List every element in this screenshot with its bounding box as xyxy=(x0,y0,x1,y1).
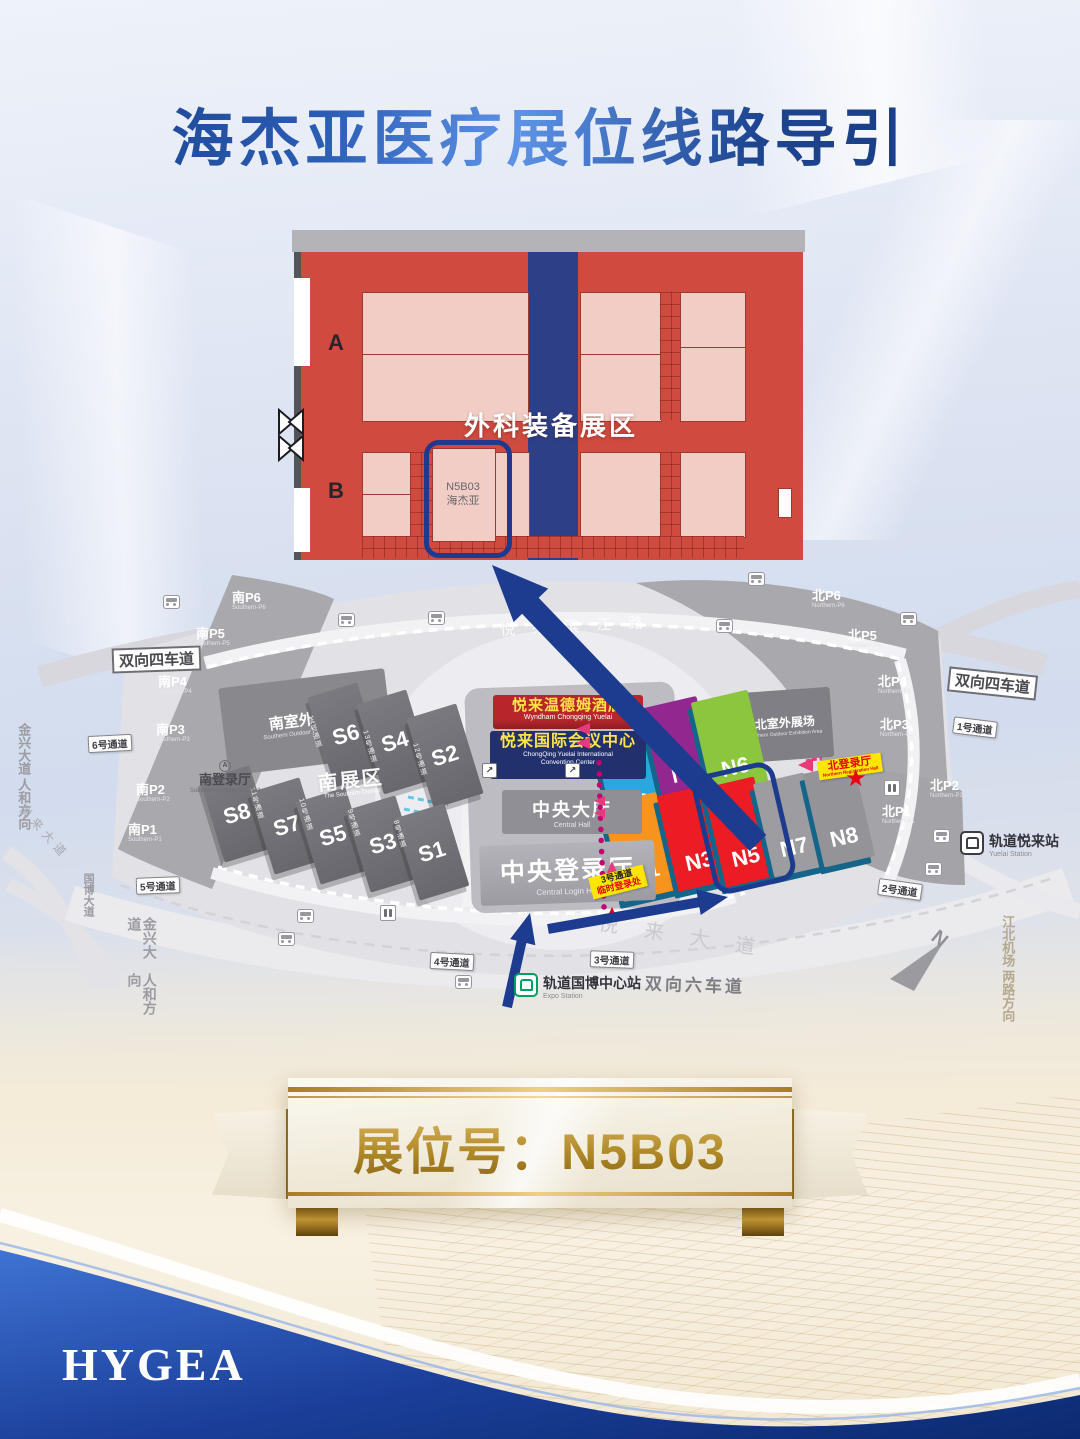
hall-floor: 外科装备展区 N5B03 海杰亚 A B xyxy=(294,252,803,560)
entrance-4: 4号通道 xyxy=(430,952,474,971)
bus-stop-icon xyxy=(900,612,917,626)
bus-stop-icon xyxy=(925,862,942,876)
parking-north-p3: 北P3Northern-P3 xyxy=(880,718,913,738)
booth-block xyxy=(362,292,529,356)
hall-door xyxy=(294,278,310,366)
restroom-icon xyxy=(884,780,900,796)
parking-south-p1: 南P1Southern-P1 xyxy=(128,823,162,843)
parking-south-p5: 南P5Southern-P5 xyxy=(196,627,230,647)
gold-line xyxy=(288,1087,792,1092)
bus-stop-icon xyxy=(297,909,314,923)
parking-south-p6: 南P6Southern-P6 xyxy=(232,591,266,611)
booth-block xyxy=(580,452,662,538)
booth-number-banner: 展位号：N5B03 xyxy=(288,1078,792,1208)
site-map: 南P6Southern-P6 南P5Southern-P5 南P4Souther… xyxy=(0,555,1080,1025)
expo-metro-station: 轨道国博中心站 Expo Station xyxy=(514,973,641,1000)
entrance-6: 6号通道 xyxy=(88,734,132,753)
road-guobo: 国博大道 xyxy=(82,873,94,917)
road-six-lane: 双向六车道 xyxy=(645,969,746,997)
restroom-icon xyxy=(380,905,396,921)
escalator-icon xyxy=(482,763,497,778)
booth-block xyxy=(680,452,746,538)
parking-south-p2: 南P2Southern-P2 xyxy=(136,783,170,803)
central-hall: 中央大厅 Central Hall xyxy=(502,790,642,834)
road-airport-direction: 江北机场 两路方向 xyxy=(1000,915,1014,1022)
badge-a-icon: A xyxy=(219,760,231,772)
page-title: 海杰亚医疗展位线路导引 xyxy=(0,88,1080,178)
parking-south-p4: 南P4Southern-P4 xyxy=(158,675,192,695)
zone-label: 外科装备展区 xyxy=(401,406,701,443)
parking-south-p3: 南P3Southern-P3 xyxy=(156,723,190,743)
north-road-shape xyxy=(940,589,1080,637)
south-registration-hall: A 南登录厅 Southern Registration Hall xyxy=(182,760,268,795)
banner-fold-left xyxy=(296,1206,338,1236)
parking-north-p5: 北P5Northern-P5 xyxy=(848,629,881,649)
banner-fold-right xyxy=(742,1206,784,1236)
booth-block xyxy=(580,292,662,356)
booth-number-text: 展位号：N5B03 xyxy=(288,1112,792,1184)
bus-stop-icon xyxy=(716,619,733,633)
door-swing-icon xyxy=(276,408,306,462)
booth-grid xyxy=(660,452,680,536)
parking-north-p2: 北P2Northern-P2 xyxy=(930,779,963,799)
gold-line xyxy=(288,1096,792,1098)
hygea-logo: HYGEA xyxy=(62,1338,246,1391)
bottom-wave-svg xyxy=(0,1175,1080,1439)
booth-highlight-outline xyxy=(424,440,512,558)
bottom-wave xyxy=(0,1175,1080,1439)
bus-stop-icon xyxy=(455,975,472,989)
metro-icon xyxy=(960,831,984,855)
bus-stop-icon xyxy=(278,932,295,946)
parking-north-p4: 北P4Northern-P4 xyxy=(878,675,911,695)
bus-stop-icon xyxy=(748,572,765,586)
escalator-icon xyxy=(565,763,580,778)
parking-north-p6: 北P6Northern-P6 xyxy=(812,589,845,609)
road-jinxing-2: 金兴大道 人和方向 xyxy=(126,917,157,1025)
entrance-3: 3号通道 xyxy=(590,950,634,969)
booth-block xyxy=(362,452,412,496)
bus-stop-icon xyxy=(933,829,950,843)
bus-stop-icon xyxy=(163,595,180,609)
hall-door xyxy=(294,488,310,552)
booth-block xyxy=(362,494,412,538)
booth-grid xyxy=(660,292,680,420)
hall-door xyxy=(778,488,792,518)
star-icon xyxy=(845,767,867,791)
entrance-5: 5号通道 xyxy=(136,876,180,895)
yuelai-metro-station: 轨道悦来站 Yuelai Station xyxy=(960,831,1059,858)
hall-top-strip xyxy=(292,230,805,252)
row-a-label: A xyxy=(328,330,344,356)
row-b-label: B xyxy=(328,478,344,504)
road-four-lane-left: 双向四车道 xyxy=(112,645,202,673)
metro-icon xyxy=(514,973,538,997)
bus-stop-icon xyxy=(428,611,445,625)
booth-block xyxy=(680,292,746,349)
hotel-banner: 悦来温德姆酒店 Wyndham Chongqing Yuelai xyxy=(493,695,643,729)
bus-stop-icon xyxy=(338,613,355,627)
booth-grid xyxy=(362,536,744,558)
parking-north-p1: 北P1Northern-P1 xyxy=(882,805,915,825)
poster: 海杰亚医疗展位线路导引 外科装备展区 N5B03 海杰亚 xyxy=(0,0,1080,1439)
hall-detail-map: 外科装备展区 N5B03 海杰亚 A B xyxy=(292,230,805,560)
gold-line xyxy=(288,1192,792,1196)
